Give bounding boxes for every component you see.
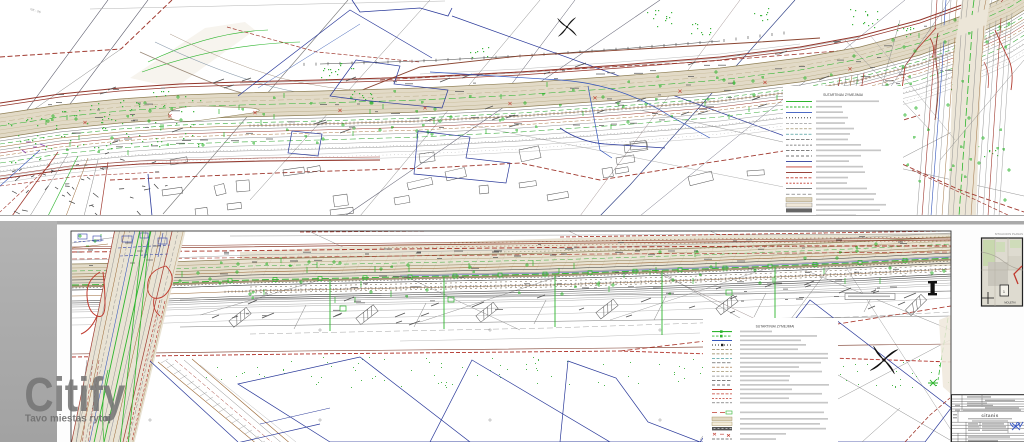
svg-text:Tavo miestas rytoj: Tavo miestas rytoj bbox=[25, 414, 111, 425]
svg-text:1: 1 bbox=[1003, 290, 1005, 294]
svg-text:SUTARTINIAI ZYMEJIMAI: SUTARTINIAI ZYMEJIMAI bbox=[823, 93, 863, 97]
svg-text:SUTARTINIAI ZYMEJIMAI: SUTARTINIAI ZYMEJIMAI bbox=[756, 325, 795, 329]
svg-text:SITUACIJOS PLANAS: SITUACIJOS PLANAS bbox=[995, 232, 1023, 236]
svg-text:citanis: citanis bbox=[981, 413, 998, 418]
svg-text:MOLETAI: MOLETAI bbox=[1004, 301, 1015, 305]
